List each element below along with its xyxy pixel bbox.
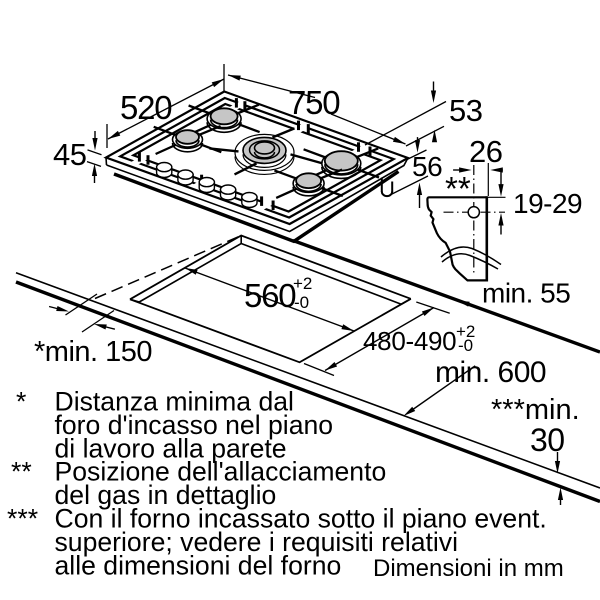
- svg-text:480-490: 480-490: [363, 326, 456, 356]
- svg-text:56: 56: [412, 151, 442, 182]
- svg-text:45: 45: [53, 137, 86, 172]
- svg-text:**: **: [11, 457, 32, 487]
- svg-text:min. 600: min. 600: [435, 356, 546, 389]
- svg-text:750: 750: [288, 84, 340, 121]
- svg-text:**: **: [445, 170, 471, 207]
- svg-text:*min. 150: *min. 150: [34, 336, 152, 368]
- svg-text:520: 520: [120, 89, 172, 126]
- svg-text:-0: -0: [294, 293, 309, 312]
- svg-text:*: *: [16, 387, 26, 417]
- svg-text:26: 26: [469, 134, 502, 169]
- svg-text:+2: +2: [293, 274, 312, 293]
- svg-text:alle dimensioni del forno: alle dimensioni del forno: [55, 550, 342, 580]
- svg-text:Dimensioni in mm: Dimensioni in mm: [373, 555, 564, 582]
- svg-text:***: ***: [7, 504, 38, 534]
- svg-text:30: 30: [530, 422, 565, 458]
- svg-text:560: 560: [244, 277, 296, 314]
- svg-text:53: 53: [449, 93, 482, 128]
- svg-text:-0: -0: [458, 336, 473, 355]
- svg-text:19-29: 19-29: [513, 188, 582, 219]
- svg-text:min. 55: min. 55: [482, 278, 570, 309]
